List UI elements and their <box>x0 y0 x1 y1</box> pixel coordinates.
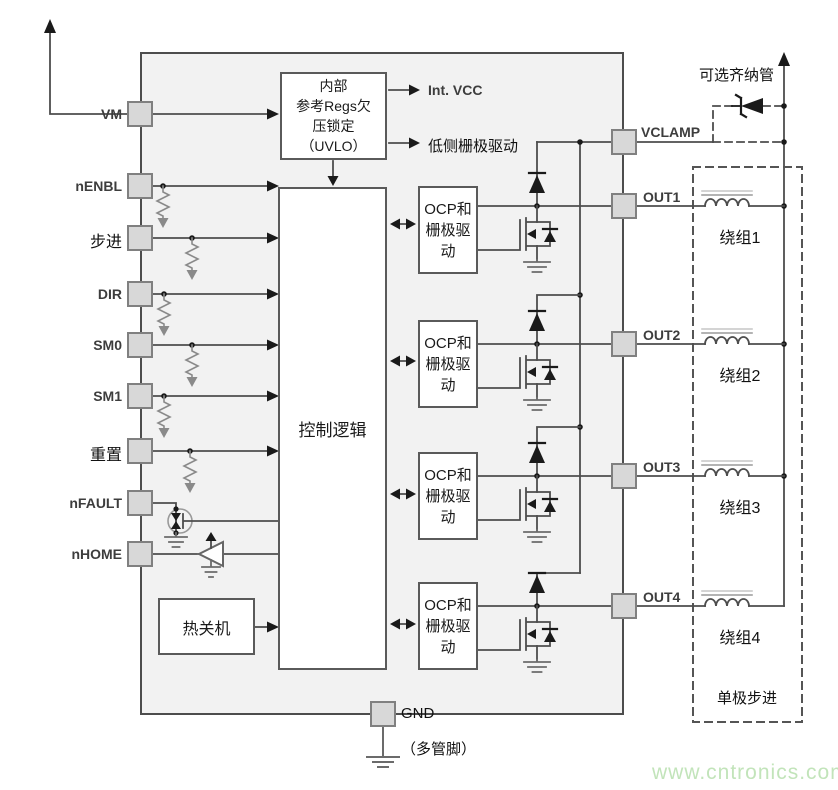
ocp-gate-drive-block-3: OCP和栅极驱动 <box>418 452 478 540</box>
bidir-arrow-ch1 <box>390 219 416 230</box>
ocp2-line3: 动 <box>424 375 472 396</box>
pin-reset <box>127 438 153 464</box>
bidir-arrow-ch3 <box>390 489 416 500</box>
ocp1-line3: 动 <box>424 241 472 262</box>
pin-label-dir: DIR <box>40 286 122 302</box>
low-side-gate-arrow <box>389 138 420 149</box>
uvlo-line1: 内部 <box>296 76 371 96</box>
pin-label-gnd: GND <box>401 705 434 722</box>
ocp3-line3: 动 <box>424 507 472 528</box>
nhome-buffer <box>152 532 278 577</box>
pulldown-resistor-nenbl <box>157 183 169 228</box>
ocp2-line1: OCP和 <box>424 333 472 354</box>
pin-sm1 <box>127 383 153 409</box>
ocp-gate-drive-block-1: OCP和栅极驱动 <box>418 186 478 274</box>
bidir-arrow-ch2 <box>390 356 416 367</box>
pulldown-resistor-sm1 <box>158 393 170 438</box>
watermark: www.cntronics.com <box>652 761 838 785</box>
thermal-shutdown-label: 热关机 <box>182 615 230 639</box>
pulldown-resistor-step <box>186 235 198 280</box>
pin-out3 <box>611 463 637 489</box>
output-stage-ch1 <box>478 142 612 272</box>
output-stage-ch4 <box>478 573 612 672</box>
uvlo-line4: （UVLO） <box>296 136 371 156</box>
pin-step <box>127 225 153 251</box>
thermal-shutdown-block: 热关机 <box>158 598 255 655</box>
pin-nhome <box>127 541 153 567</box>
pin-label-reset: 重置 <box>40 441 122 465</box>
pin-label-nenbl: nENBL <box>40 178 122 194</box>
ocp4-line2: 栅极驱 <box>424 616 472 637</box>
ocp-gate-drive-block-2: OCP和栅极驱动 <box>418 320 478 408</box>
vm-supply-arrow <box>44 19 128 114</box>
int-vcc-arrow <box>389 85 420 96</box>
winding-label-1: 绕组1 <box>705 224 775 248</box>
pin-label-vm: VM <box>40 106 122 122</box>
pin-out1 <box>611 193 637 219</box>
thermal-arrow <box>255 622 279 633</box>
uvlo-to-control-arrow <box>328 161 339 186</box>
ocp4-line1: OCP和 <box>424 595 472 616</box>
pin-label-out2: OUT2 <box>643 327 680 343</box>
winding-label-2: 绕组2 <box>705 362 775 386</box>
motor-supply-rail <box>778 52 790 606</box>
zener-label: 可选齐纳管 <box>699 64 774 85</box>
pin-sm0 <box>127 332 153 358</box>
pin-vclamp <box>611 129 637 155</box>
ocp3-line1: OCP和 <box>424 465 472 486</box>
pin-label-out1: OUT1 <box>643 189 680 205</box>
pin-label-sm1: SM1 <box>40 388 122 404</box>
pin-label-vclamp: VCLAMP <box>641 124 700 140</box>
gnd-note: （多管脚） <box>401 738 476 759</box>
ocp1-line2: 栅极驱 <box>424 220 472 241</box>
ocp1-line1: OCP和 <box>424 199 472 220</box>
pin-vm <box>127 101 153 127</box>
pin-gnd <box>370 701 396 727</box>
ocp2-line2: 栅极驱 <box>424 354 472 375</box>
pin-label-nhome: nHOME <box>30 546 122 562</box>
pin-label-step: 步进 <box>40 228 122 252</box>
pin-out4 <box>611 593 637 619</box>
winding-label-3: 绕组3 <box>705 494 775 518</box>
output-stage-ch3 <box>478 427 612 542</box>
input-wires <box>152 181 279 457</box>
ocp3-line2: 栅极驱 <box>424 486 472 507</box>
pulldown-resistor-dir <box>158 291 170 336</box>
pin-out2 <box>611 331 637 357</box>
pin-label-out3: OUT3 <box>643 459 680 475</box>
uvlo-block: 内部 参考Regs欠 压锁定 （UVLO） <box>280 72 387 160</box>
motor-caption: 单极步进 <box>702 687 792 708</box>
uvlo-line3: 压锁定 <box>296 116 371 136</box>
ocp4-line3: 动 <box>424 637 472 658</box>
ocp-gate-drive-block-4: OCP和栅极驱动 <box>418 582 478 670</box>
pulldown-resistor-reset <box>184 448 196 493</box>
int-vcc-label: Int. VCC <box>428 82 482 98</box>
block-diagram: 内部 参考Regs欠 压锁定 （UVLO） 控制逻辑 热关机 OCP和栅极驱动 … <box>0 0 838 790</box>
output-stage-ch2 <box>478 295 612 410</box>
pin-dir <box>127 281 153 307</box>
pin-nenbl <box>127 173 153 199</box>
control-logic-block: 控制逻辑 <box>278 187 387 670</box>
uvlo-line2: 参考Regs欠 <box>296 96 371 116</box>
bidir-arrow-ch4 <box>390 619 416 630</box>
gnd-symbol <box>367 726 399 767</box>
low-side-gate-label: 低侧栅极驱动 <box>428 135 518 156</box>
pin-label-sm0: SM0 <box>40 337 122 353</box>
winding-label-4: 绕组4 <box>705 624 775 648</box>
zener-diode <box>732 95 763 117</box>
pin-label-out4: OUT4 <box>643 589 680 605</box>
control-logic-label: 控制逻辑 <box>299 416 367 441</box>
pulldown-resistor-sm0 <box>186 342 198 387</box>
vm-wire <box>152 109 279 120</box>
pin-label-nfault: nFAULT <box>30 495 122 511</box>
pin-nfault <box>127 490 153 516</box>
